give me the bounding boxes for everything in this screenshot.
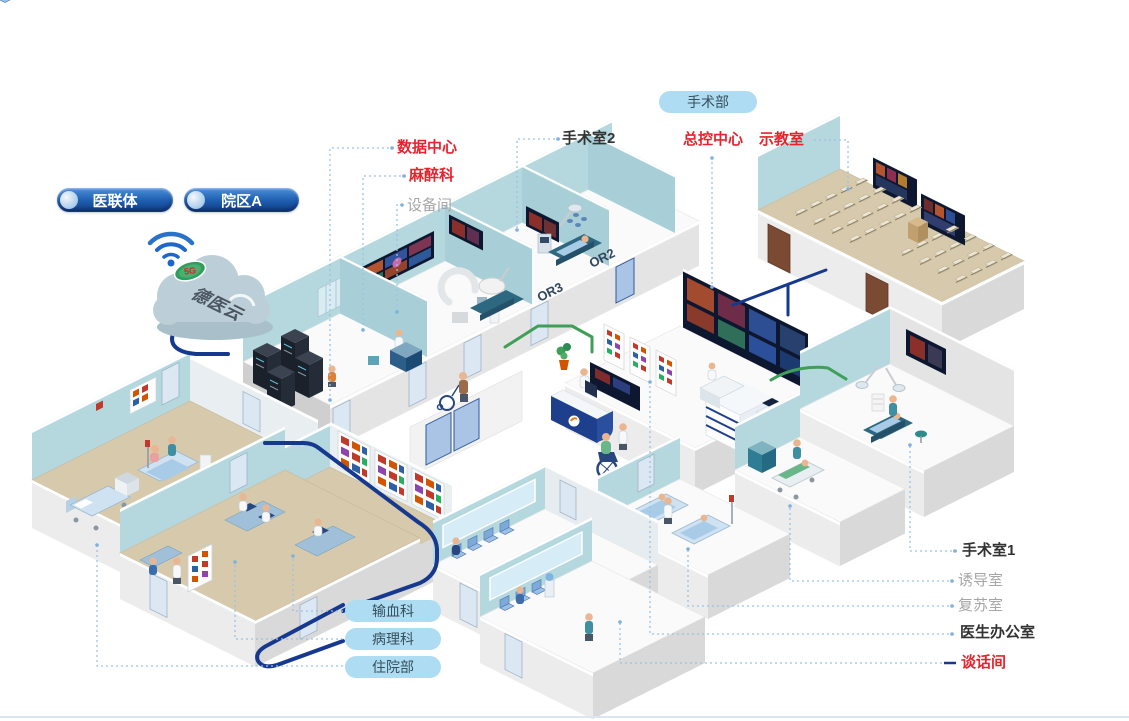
podium	[908, 217, 928, 243]
wifi-icon	[150, 234, 192, 266]
label-control-center: 总控中心	[683, 131, 743, 149]
badge-campus-a-label: 院区A	[221, 190, 262, 211]
water-dispenser	[545, 573, 554, 597]
label-or1: 手术室1	[962, 542, 1015, 560]
badge-medical-alliance-label: 医联体	[92, 190, 137, 211]
label-equipment-room: 设备间	[407, 197, 452, 215]
pill-inpatient-dept: 住院部	[345, 656, 441, 678]
cloud-icon: 德医云 5G	[153, 255, 273, 340]
label-recovery: 复苏室	[958, 597, 1003, 615]
label-or2: 手术室2	[562, 130, 615, 148]
badge-cap-dot	[187, 191, 205, 209]
pill-pathology-dept: 病理科	[345, 628, 441, 650]
label-data-center: 数据中心	[397, 139, 457, 157]
label-anesthesia: 麻醉科	[409, 167, 454, 185]
badge-medical-alliance: 医联体	[57, 188, 173, 212]
pill-surgery-department: 手术部	[659, 91, 757, 113]
label-classroom: 示教室	[759, 131, 804, 149]
label-induction: 诱导室	[958, 572, 1003, 590]
badge-campus-a: 院区A	[184, 188, 299, 212]
label-talk-room: 谈话间	[961, 654, 1006, 672]
cloud-5g-label: 5G	[183, 265, 196, 277]
badge-cap-dot	[60, 191, 78, 209]
pill-blood-dept: 输血科	[345, 600, 441, 622]
plant	[557, 343, 572, 370]
cable-to-classroom	[733, 270, 826, 305]
footer-divider	[0, 716, 1129, 718]
label-doctor-office: 医生办公室	[960, 624, 1035, 642]
